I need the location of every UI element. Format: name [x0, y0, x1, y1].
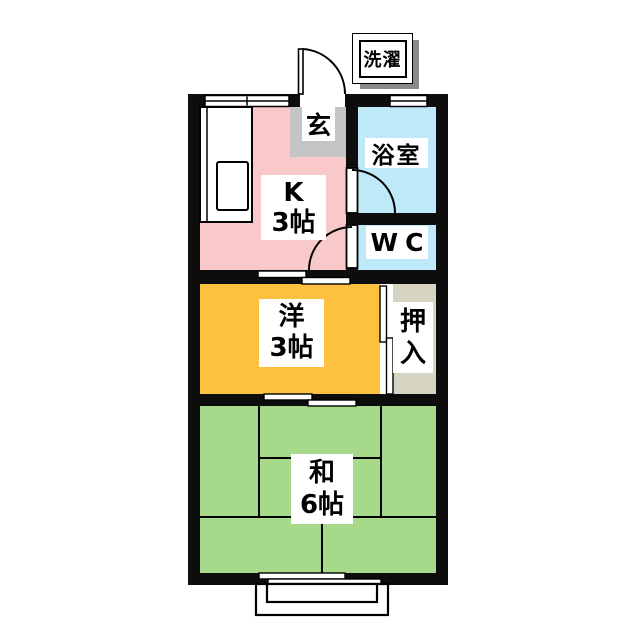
- laundry-label: 洗濯: [359, 40, 407, 78]
- wall-right: [436, 94, 448, 585]
- entrance-hall-label: 玄: [302, 107, 335, 141]
- wall-kitchen-bath-upper: [346, 107, 358, 168]
- closet-label: 押 入: [393, 302, 433, 373]
- kitchen-label-line1: K: [283, 178, 303, 208]
- balcony-step: [256, 584, 388, 615]
- kitchen-label-line2: 3帖: [271, 208, 315, 238]
- wall-bath-wc: [346, 213, 436, 225]
- wall-kitchen-western: [188, 270, 448, 284]
- bathroom-label: 浴室: [365, 138, 428, 168]
- bathroom-label-text: 浴室: [372, 136, 422, 170]
- entrance-door: [299, 49, 346, 94]
- japanese-room-label: 和 6帖: [291, 454, 353, 524]
- floor-plan: 洗濯 玄 K 3帖 浴室 WC 洋 3帖 押 入 和 6帖: [0, 0, 640, 640]
- japanese-room-label-line1: 和: [309, 457, 335, 489]
- entrance-hall-label-text: 玄: [306, 106, 331, 142]
- closet-label-line1: 押: [400, 306, 426, 338]
- closet-sliding-door: [380, 286, 393, 394]
- wc-label: WC: [366, 226, 428, 259]
- wall-bottom: [188, 573, 448, 585]
- japanese-room-label-line2: 6帖: [300, 489, 344, 521]
- wc-label-text: WC: [364, 228, 431, 257]
- closet-label-line2: 入: [400, 338, 426, 370]
- wall-left: [188, 94, 200, 585]
- wall-western-japanese: [188, 394, 448, 406]
- wall-kitchen-bath-lower: [346, 268, 358, 284]
- western-room-label-line1: 洋: [278, 302, 304, 333]
- western-room-label-line2: 3帖: [269, 333, 313, 364]
- laundry-box: 洗濯: [352, 33, 413, 84]
- kitchen-label: K 3帖: [261, 175, 326, 240]
- western-room-label: 洋 3帖: [259, 299, 324, 367]
